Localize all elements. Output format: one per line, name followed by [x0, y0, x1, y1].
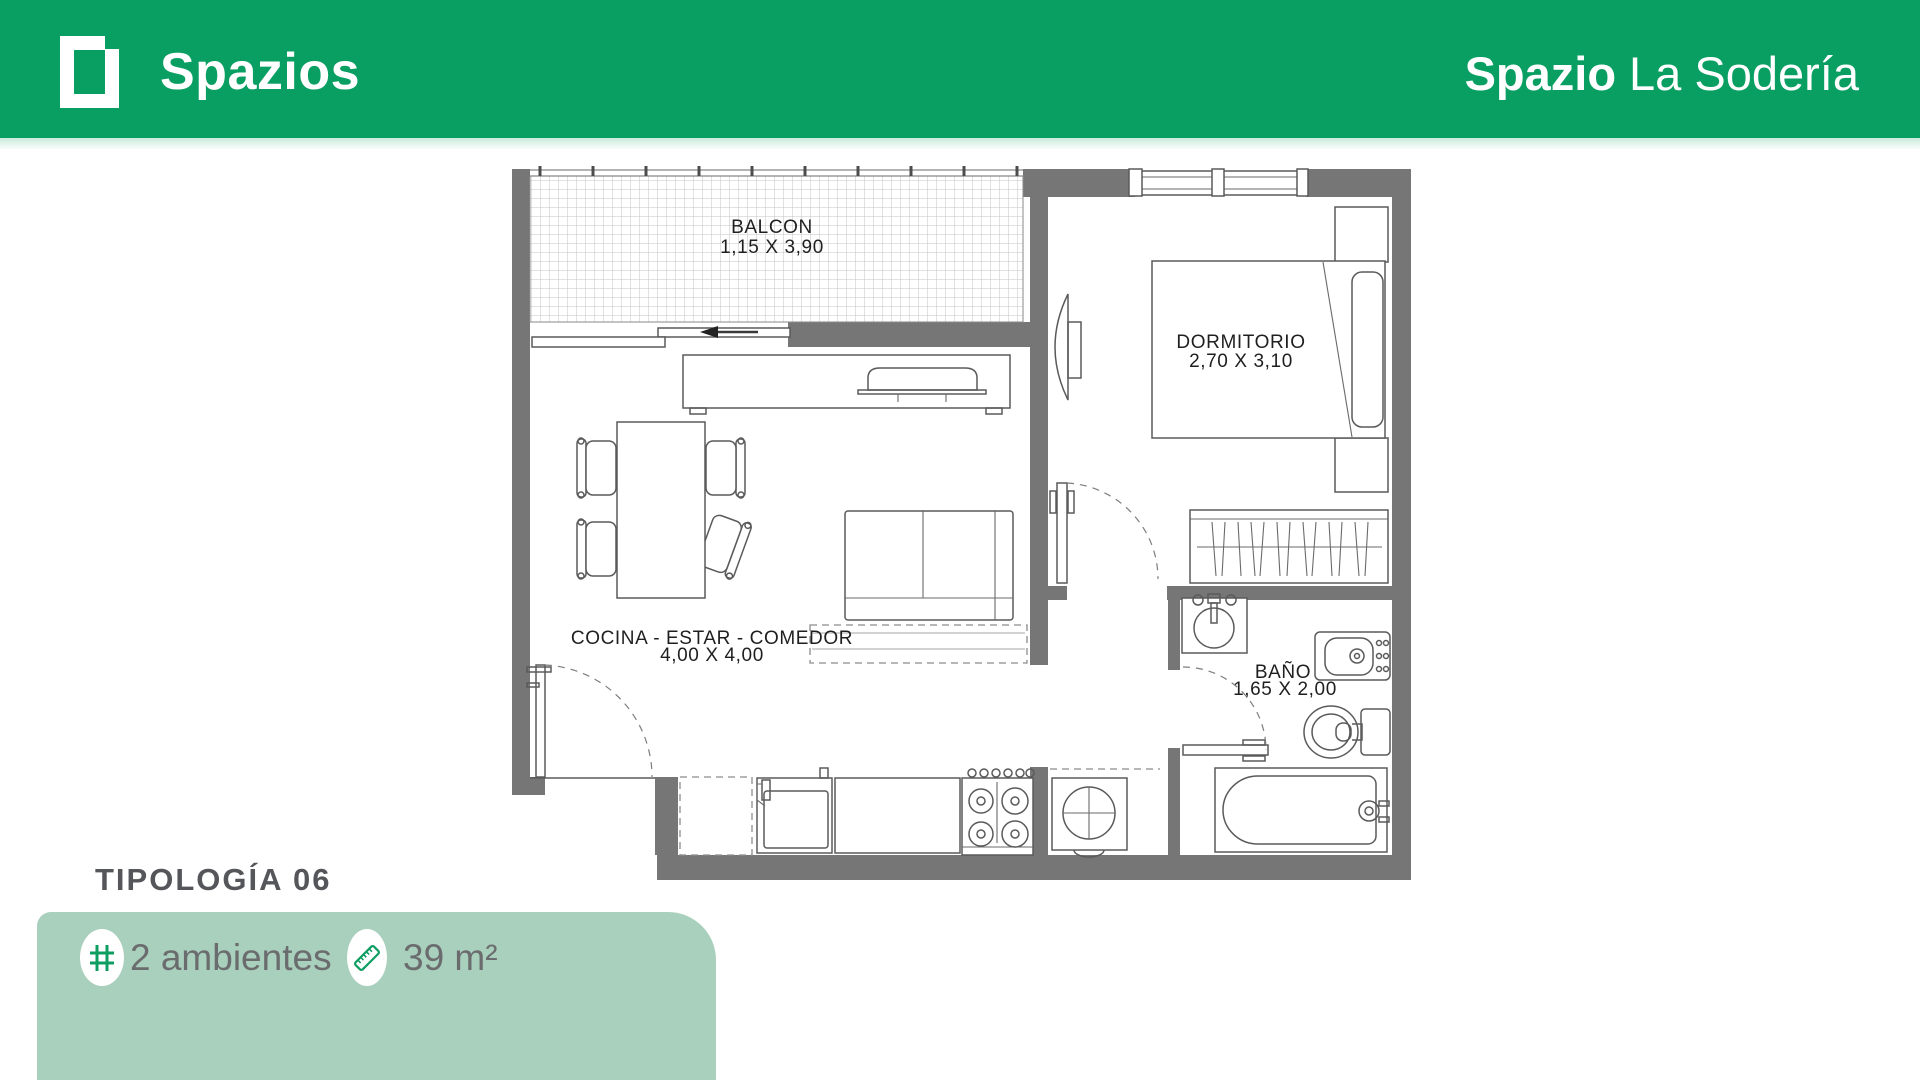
- counter: [835, 778, 960, 853]
- area-label: 39 m²: [403, 912, 498, 1004]
- room-dims-balcon: 1,15 X 3,90: [720, 237, 824, 258]
- typology-title: TIPOLOGÍA 06: [95, 862, 331, 898]
- sofa: [845, 511, 1013, 620]
- ruler-icon: [352, 943, 382, 973]
- dining-table: [617, 422, 705, 598]
- room-dims-cocina: 4,00 X 4,00: [660, 645, 764, 666]
- sliding-door: [532, 326, 790, 347]
- under-counter-space: [680, 777, 752, 855]
- kitchen-sink: [757, 768, 832, 853]
- stove: [962, 769, 1034, 855]
- washing-machine: [1050, 769, 1160, 857]
- room-label-dormitorio: DORMITORIO: [1176, 332, 1305, 353]
- flyer: Spazios SpazioLa Sodería: [0, 0, 1920, 1080]
- bathroom: [1182, 594, 1390, 852]
- chair: [577, 438, 616, 498]
- entry-door: [527, 665, 655, 778]
- dresser: [1055, 294, 1081, 400]
- bathtub: [1215, 768, 1389, 852]
- rooms-badge: [80, 929, 124, 986]
- bedroom: [1129, 169, 1388, 583]
- nightstand: [1335, 438, 1388, 492]
- bidet: [1315, 632, 1390, 680]
- bedroom-door: [1050, 483, 1158, 583]
- tv-unit: [683, 355, 1010, 414]
- area-badge: [347, 929, 387, 986]
- wardrobe: [1190, 510, 1388, 583]
- toilet: [1304, 706, 1390, 758]
- kitchen: [680, 768, 1160, 857]
- room-label-balcon: BALCON: [731, 217, 813, 238]
- rooms-count-label: 2 ambientes: [130, 912, 332, 1004]
- bathroom-sink: [1182, 594, 1247, 653]
- dining-set: [577, 422, 753, 598]
- grid-icon: [88, 942, 116, 974]
- window: [1129, 169, 1308, 196]
- railing-ticks: [540, 166, 1017, 176]
- room-dims-bano: 1,65 X 2,00: [1233, 679, 1337, 700]
- room-dims-dormitorio: 2,70 X 3,10: [1189, 351, 1293, 372]
- chair: [706, 438, 745, 498]
- chair: [577, 519, 616, 579]
- nightstand: [1335, 207, 1388, 262]
- summary-card: 2 ambientes 39 m²: [37, 912, 716, 1080]
